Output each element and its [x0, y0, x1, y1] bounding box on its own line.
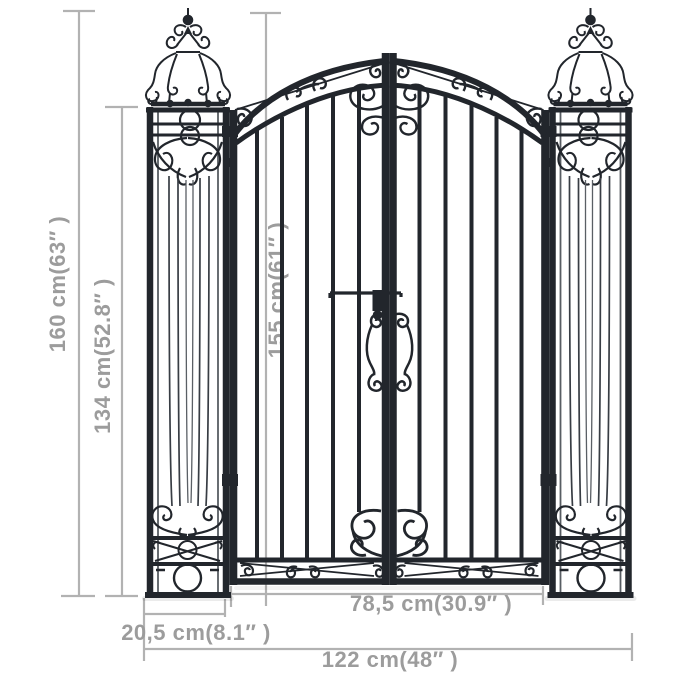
svg-text:122 cm(48″ ): 122 cm(48″ ): [322, 647, 458, 672]
svg-text:78,5 cm(30.9″ ): 78,5 cm(30.9″ ): [350, 591, 512, 616]
svg-text:134 cm(52.8″ ): 134 cm(52.8″ ): [90, 278, 115, 434]
svg-text:160 cm(63″ ): 160 cm(63″ ): [45, 216, 70, 352]
svg-text:155 cm(61″ ): 155 cm(61″ ): [264, 222, 289, 358]
svg-text:20,5 cm(8.1″ ): 20,5 cm(8.1″ ): [121, 620, 271, 645]
